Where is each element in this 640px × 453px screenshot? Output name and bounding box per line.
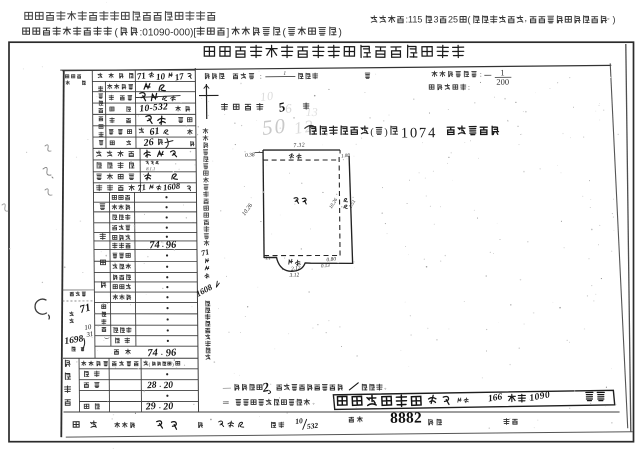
svg-text:◦: ◦ — [312, 401, 314, 407]
svg-text:200: 200 — [496, 77, 509, 87]
svg-text:): ) — [103, 337, 110, 339]
svg-text::: : — [260, 73, 262, 81]
svg-text:•: • — [159, 406, 161, 411]
svg-text:—: — — [222, 383, 232, 392]
svg-text:1608: 1608 — [163, 181, 182, 193]
svg-text::115: :115 — [406, 15, 423, 25]
svg-text:96: 96 — [165, 240, 177, 252]
svg-text:◦: ◦ — [607, 16, 609, 23]
svg-text:3: 3 — [434, 15, 439, 25]
svg-text:25: 25 — [448, 15, 458, 25]
svg-text:0.13: 0.13 — [321, 264, 331, 270]
svg-text:1: 1 — [283, 71, 286, 77]
svg-text::: : — [468, 83, 470, 91]
svg-text:74: 74 — [149, 240, 160, 252]
svg-text:2.12: 2.12 — [291, 265, 301, 272]
svg-text:•: • — [162, 245, 164, 250]
svg-text:,: , — [525, 13, 528, 23]
svg-text:): ) — [613, 15, 616, 25]
svg-text:28: 28 — [146, 381, 158, 392]
svg-text:10: 10 — [155, 71, 166, 82]
svg-text:50: 50 — [261, 113, 289, 140]
svg-text:•: • — [159, 385, 161, 390]
svg-text:532: 532 — [306, 421, 318, 431]
svg-text:0.38: 0.38 — [245, 152, 255, 159]
svg-text:1.08: 1.08 — [341, 154, 351, 160]
svg-text:1.1: 1.1 — [265, 255, 271, 260]
svg-text:29: 29 — [144, 401, 156, 413]
svg-text:7.32: 7.32 — [293, 142, 305, 149]
svg-text:96: 96 — [165, 347, 177, 359]
svg-text:8882: 8882 — [390, 410, 422, 427]
svg-text:═: ═ — [222, 398, 229, 407]
svg-text:20: 20 — [162, 401, 174, 413]
svg-text:]: ] — [227, 28, 230, 39]
svg-text:166: 166 — [487, 392, 503, 404]
svg-text:0.80: 0.80 — [326, 256, 336, 263]
svg-text:(: ( — [468, 15, 471, 25]
svg-text:71: 71 — [137, 182, 147, 193]
svg-text:1074: 1074 — [401, 125, 437, 141]
svg-text:•: • — [161, 353, 163, 358]
svg-text:74: 74 — [147, 348, 158, 360]
svg-text:8.1.1: 8.1.1 — [146, 166, 155, 171]
svg-text:): ) — [384, 127, 387, 138]
svg-text:): ) — [339, 28, 342, 39]
svg-text::01090-000)[: :01090-000)[ — [140, 28, 197, 39]
svg-text:31: 31 — [85, 330, 94, 339]
svg-text:71: 71 — [136, 70, 146, 81]
svg-text:26: 26 — [142, 137, 154, 149]
svg-text:3.12: 3.12 — [288, 272, 299, 279]
svg-text:(: ( — [102, 302, 109, 304]
svg-text:◦: ◦ — [384, 386, 386, 392]
svg-text::: : — [480, 71, 482, 79]
svg-text:10: 10 — [259, 89, 275, 105]
svg-text:13: 13 — [306, 105, 318, 119]
svg-text:20: 20 — [162, 381, 174, 392]
